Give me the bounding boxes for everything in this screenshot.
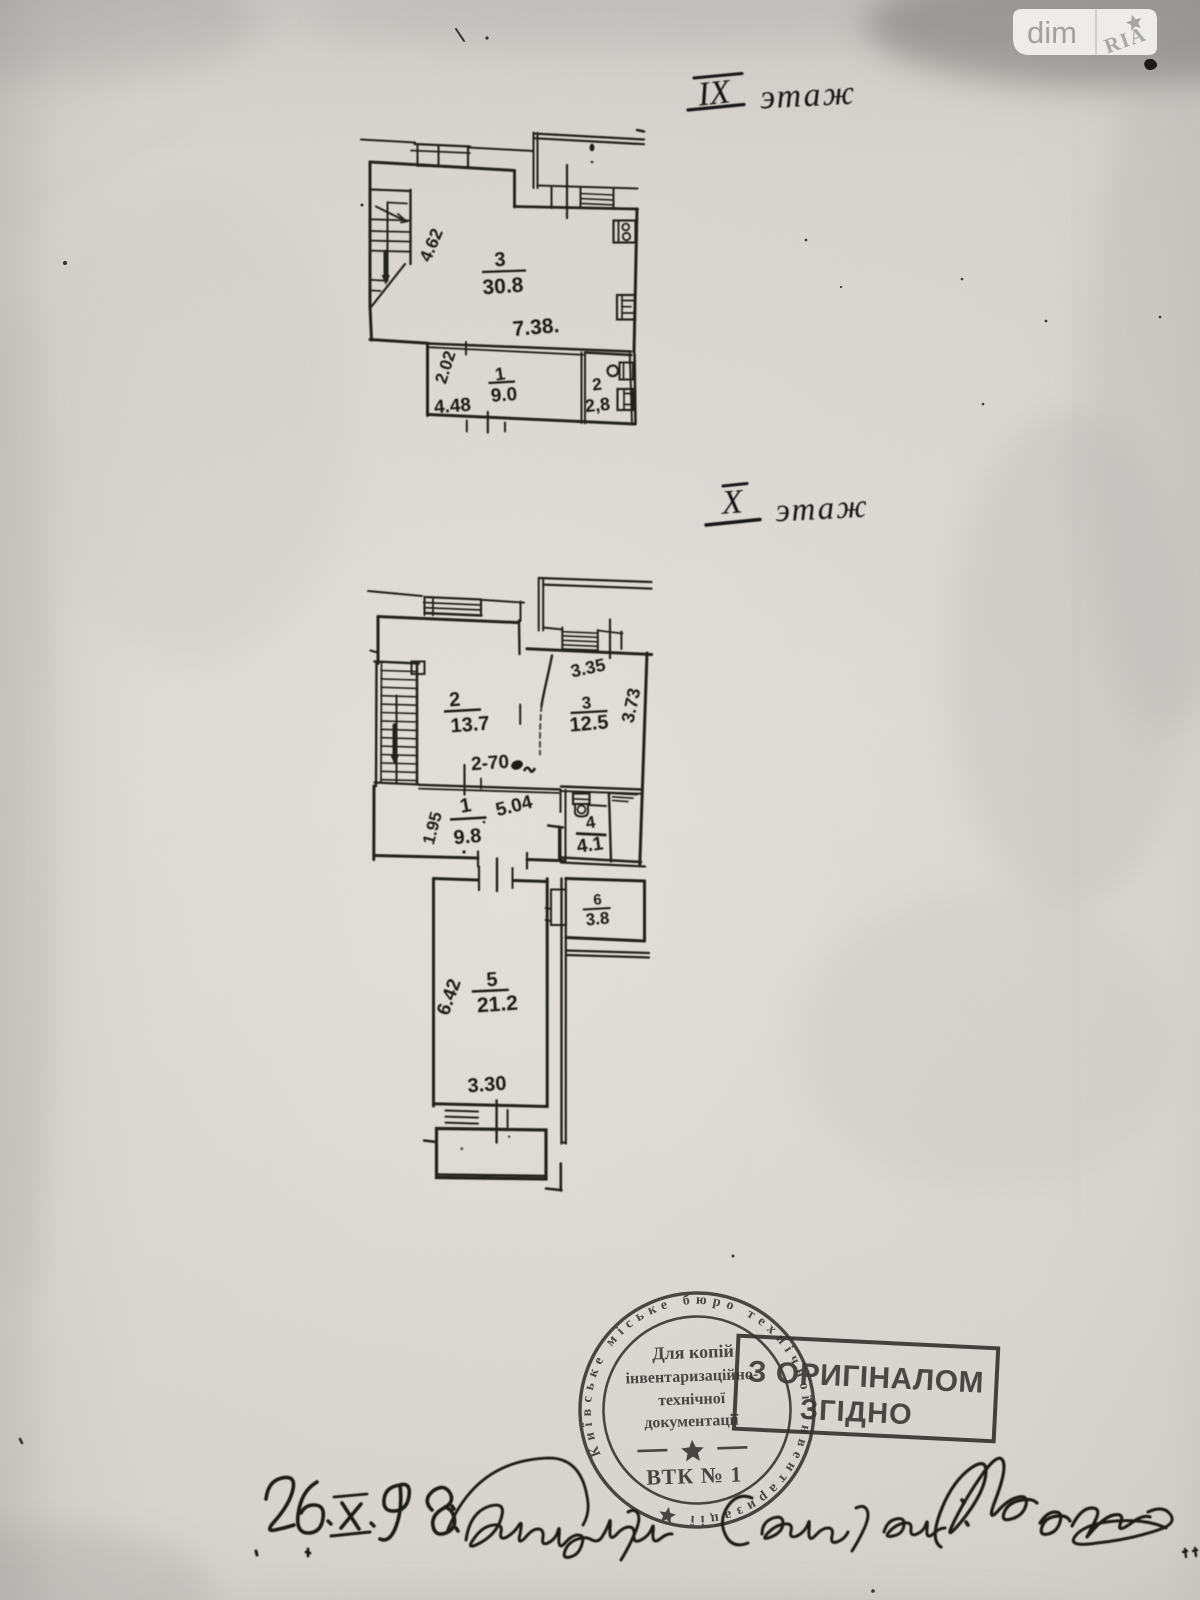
svg-text:3.8: 3.8 bbox=[585, 909, 610, 930]
svg-text:ВТК № 1: ВТК № 1 bbox=[646, 1461, 743, 1489]
svg-text:21.2: 21.2 bbox=[476, 992, 518, 1018]
svg-text:7.38.: 7.38. bbox=[512, 314, 561, 341]
svg-text:dim: dim bbox=[1027, 15, 1077, 50]
svg-text:12.5: 12.5 bbox=[569, 711, 610, 736]
svg-text:Для копій: Для копій bbox=[652, 1341, 734, 1364]
svg-text:4.1: 4.1 bbox=[576, 833, 606, 858]
svg-text:2: 2 bbox=[591, 375, 602, 395]
svg-text:6: 6 bbox=[593, 891, 603, 909]
svg-text:этаж: этаж bbox=[774, 489, 869, 530]
svg-text:документації: документації bbox=[644, 1412, 739, 1432]
svg-text:4.48: 4.48 bbox=[433, 395, 471, 419]
svg-text:технічної: технічної bbox=[658, 1390, 726, 1409]
svg-text:2: 2 bbox=[448, 689, 461, 712]
svg-text:этаж: этаж bbox=[759, 75, 857, 117]
svg-text:2,8: 2,8 bbox=[584, 394, 611, 417]
svg-text:13.7: 13.7 bbox=[450, 713, 490, 738]
svg-text:3.30: 3.30 bbox=[467, 1073, 507, 1098]
svg-text:2-70: 2-70 bbox=[470, 752, 509, 776]
svg-text:5: 5 bbox=[486, 969, 499, 992]
svg-text:3: 3 bbox=[494, 249, 507, 272]
svg-text:ЗГІДНО: ЗГІДНО bbox=[799, 1394, 913, 1431]
svg-text:9.0: 9.0 bbox=[490, 384, 518, 407]
svg-text:30.8: 30.8 bbox=[482, 274, 525, 300]
svg-text:X: X bbox=[719, 483, 746, 522]
svg-text:9.8: 9.8 bbox=[453, 825, 483, 849]
svg-text:3: 3 bbox=[581, 693, 592, 713]
